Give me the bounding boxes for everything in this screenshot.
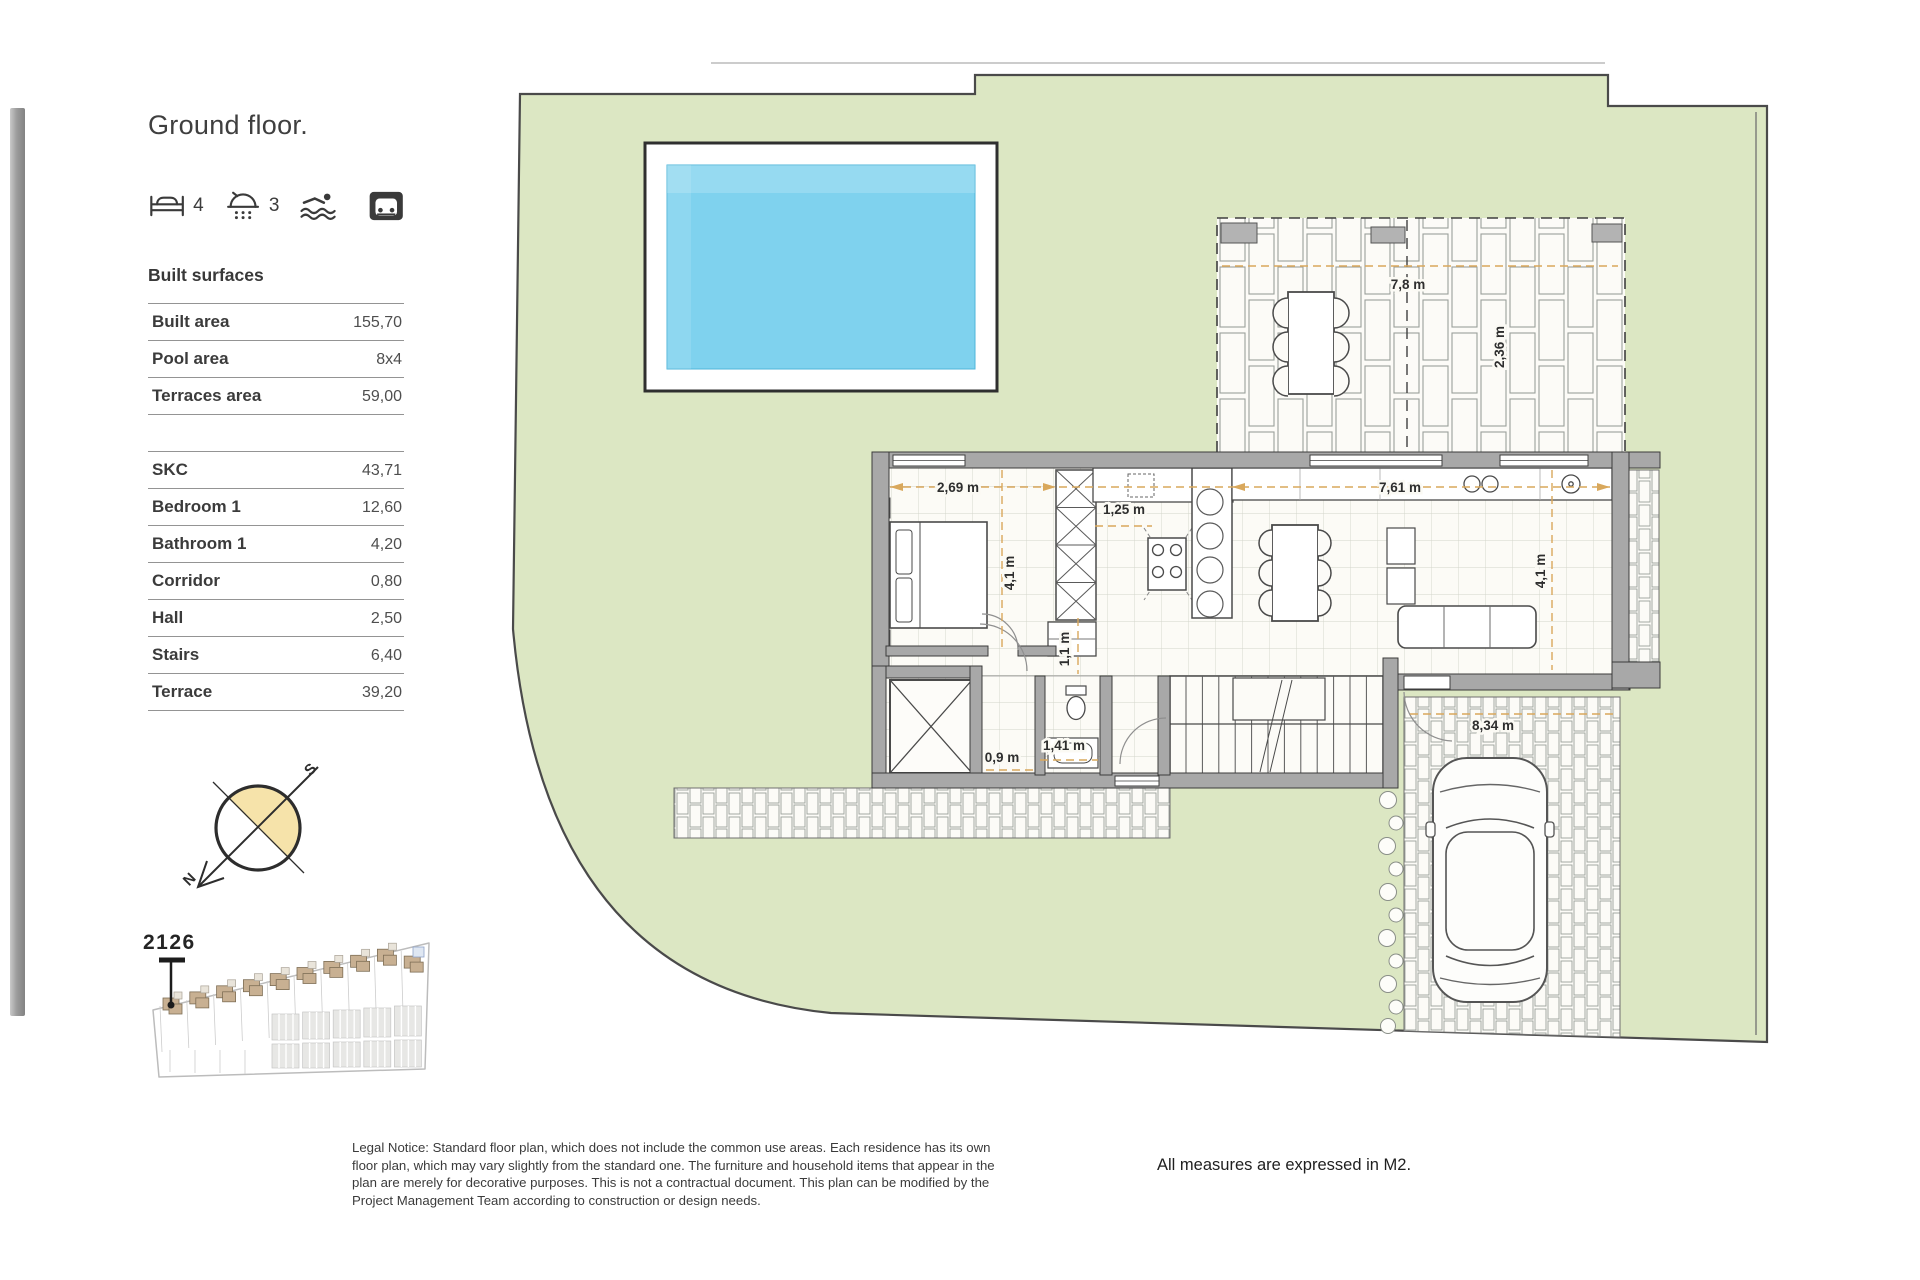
floor-plan-drawing: 2,69 m 1,25 m 7,61 m 4,1 m 4,1 m 1,1 m 1… [0, 0, 1920, 1280]
dim-bedroom-height: 4,1 m [1002, 556, 1017, 591]
stairs [1170, 676, 1383, 775]
dim-hall-length: 1,41 m [1043, 738, 1085, 753]
legal-notice: Legal Notice: Standard floor plan, which… [352, 1139, 1004, 1209]
side-porch [1629, 470, 1659, 670]
dim-hall-width: 0,9 m [985, 750, 1020, 765]
swimming-pool [645, 143, 997, 391]
dim-living-height: 4,1 m [1533, 554, 1548, 589]
dim-bedroom-width: 2,69 m [937, 480, 979, 495]
dim-corridor-width: 1,1 m [1057, 632, 1072, 667]
garden-walkway [674, 788, 1170, 838]
terrace-dining-table [1273, 292, 1349, 396]
dim-terrace-depth: 2,36 m [1492, 326, 1507, 368]
floorplan-page: Ground floor. 4 3 [0, 0, 1920, 1280]
dim-closet-width: 1,25 m [1103, 502, 1145, 517]
patio-court [890, 680, 972, 773]
sofa [1398, 606, 1536, 648]
measures-note: All measures are expressed in M2. [1157, 1156, 1411, 1175]
dim-driveway-length: 8,34 m [1472, 718, 1514, 733]
upper-terrace [1217, 218, 1625, 458]
car [1426, 758, 1554, 1002]
dim-living-width: 7,61 m [1379, 480, 1421, 495]
dim-terrace-width: 7,8 m [1391, 277, 1426, 292]
